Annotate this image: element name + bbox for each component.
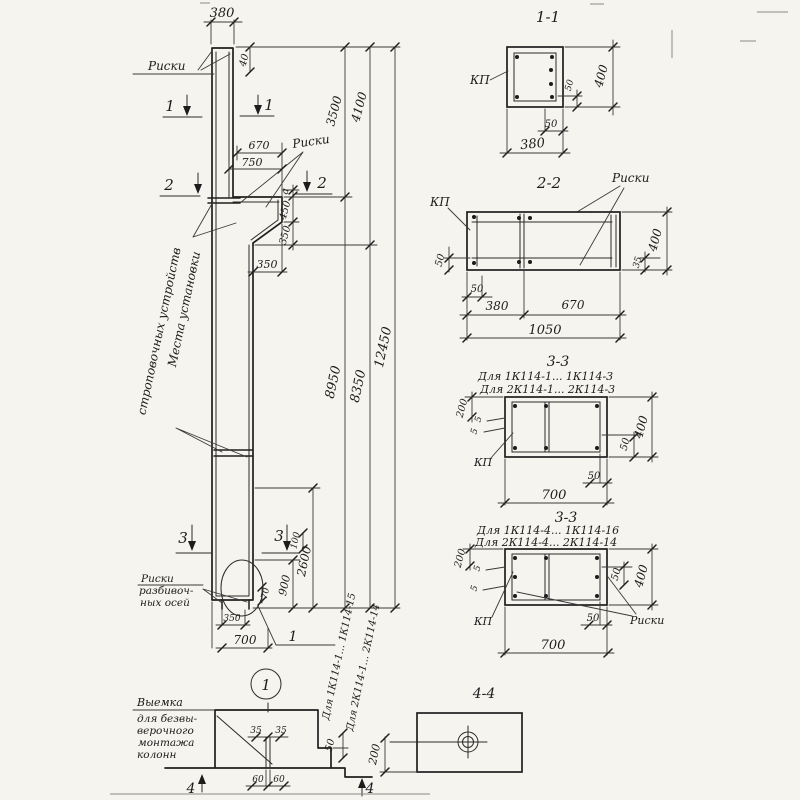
section-3-3a-for1: Для 1К114-1... 1К114-3 [477, 370, 613, 383]
section-3-3a-for2: Для 2К114-1... 2К114-3 [479, 383, 615, 396]
blueprint-column-drawing: 380 40 Риски 1 1 2 2 3 [0, 0, 800, 800]
dim-450: 450 [278, 199, 294, 222]
dim-60b: 60 [273, 775, 285, 785]
drawing-sheet: 380 40 Риски 1 1 2 2 3 [0, 0, 800, 800]
recess-note-4: монтажа [138, 737, 194, 749]
svg-text:1: 1 [165, 97, 175, 115]
section-mark-2-right: 2 [296, 171, 332, 194]
section-3-3a: 3-3 Для 1К114-1... 1К114-3 Для 2К114-1..… [455, 354, 658, 507]
dim-50l-2-2: 50 [434, 252, 448, 268]
section-mark-3-left: 3 [176, 525, 212, 553]
section-3-3a-title: 3-3 [547, 354, 570, 370]
sling-note: Места установки строповочных устройств [134, 202, 247, 457]
svg-text:1: 1 [289, 629, 298, 645]
svg-text:1: 1 [261, 676, 271, 694]
dim-670-2-2: 670 [562, 298, 585, 312]
kp-label-3-3a: КП [473, 456, 493, 469]
dim-670: 670 [249, 139, 270, 152]
svg-text:2: 2 [316, 174, 327, 192]
section-3-3b: 3-3 Для 1К114-4... 1К114-16 Для 2К114-4.… [453, 510, 665, 657]
detail-ref-leader: 1 [258, 606, 335, 645]
dim-700-base: 700 [234, 633, 257, 647]
dim-35b: 35 [275, 726, 287, 736]
riski-mid-label: Риски [290, 132, 330, 151]
dim-35a: 35 [250, 726, 262, 736]
svg-text:ных осей: ных осей [140, 597, 190, 609]
riski-label-3-3b: Риски [629, 614, 664, 627]
section-mark-1-right: 1 [240, 95, 274, 116]
dim-50b-2-2: 50 [471, 284, 484, 295]
dim-50-recess: 50 [324, 737, 338, 753]
section-1-1: 1-1 КП 400 50 50 380 [469, 8, 620, 157]
dim-12450: 12450 [372, 325, 395, 369]
svg-text:2: 2 [163, 176, 174, 194]
dim-350-v: 350 [278, 224, 294, 246]
layout-axes-note: Риски разбивоч- ных осей [138, 573, 247, 609]
recess-note-3: верочного [137, 725, 194, 737]
dim-380-2-2: 380 [486, 299, 509, 313]
svg-text:1: 1 [264, 96, 274, 114]
base-dims: 350 700 [212, 602, 272, 652]
recess-detail: Выемка для безвы- верочного монтажа коло… [133, 696, 374, 797]
dim-4100: 4100 [348, 90, 370, 124]
dim-400-1-1: 400 [591, 63, 611, 90]
section-3-3b-for2: Для 2К114-4... 2К114-14 [474, 536, 617, 549]
section-1-1-title: 1-1 [536, 8, 560, 26]
dim-50b-1-1: 50 [545, 119, 558, 130]
column-elevation: 380 40 Риски 1 1 2 2 3 [133, 6, 400, 733]
section-2-2-title: 2-2 [536, 174, 561, 192]
section-4-4-title: 4-4 [472, 686, 496, 702]
kp-label-2-2: КП [429, 195, 450, 209]
dim-8950: 8950 [323, 365, 345, 400]
dim-50b-3-3a: 50 [588, 471, 601, 482]
svg-text:4: 4 [365, 781, 375, 797]
dim-750: 750 [242, 156, 263, 169]
dim-380-1-1: 380 [520, 136, 546, 154]
svg-text:4: 4 [186, 781, 196, 797]
detail-ref-bubble: 1 [251, 669, 281, 699]
dim-200-3-3b: 200 [453, 547, 469, 570]
section-4-4: 4-4 200 [366, 686, 522, 776]
dim-400-3-3a: 400 [631, 414, 651, 441]
svg-text:3: 3 [178, 529, 188, 547]
dim-700-3-3b: 700 [541, 638, 566, 653]
recess-note-5: колонн [137, 749, 177, 761]
section-mark-2-left: 2 [160, 173, 202, 196]
riski-label-2-2: Риски [611, 171, 649, 185]
svg-text:разбивоч-: разбивоч- [139, 585, 194, 597]
dim-60a: 60 [252, 775, 264, 785]
dim-3500: 3500 [323, 94, 345, 127]
dim-50r-3-3a: 50 [619, 436, 633, 452]
svg-text:Риски: Риски [140, 573, 174, 585]
dim-700-3-3a: 700 [542, 488, 567, 503]
dim-5a-3-3b: 5 [472, 564, 483, 572]
section-2-2: 2-2 Риски КП 50 50 380 670 1050 400 35 [429, 171, 672, 342]
dim-400-2-2: 400 [645, 227, 665, 254]
svg-text:3: 3 [274, 527, 284, 545]
dim-5b-3-3b: 5 [469, 584, 480, 592]
recess-note-1: Выемка [136, 696, 183, 709]
dim-5a-3-3a: 5 [473, 415, 484, 423]
kp-label-1-1: КП [469, 73, 490, 87]
dim-350-base: 350 [223, 614, 240, 624]
dim-400-3-3b: 400 [631, 563, 651, 590]
dim-35-2-2: 35 [632, 255, 645, 269]
dim-200-4-4: 200 [366, 743, 383, 767]
dim-8350: 8350 [348, 369, 370, 404]
dim-70: 70 [260, 587, 272, 601]
dim-a: а [280, 187, 292, 196]
dim-50b-3-3b: 50 [587, 613, 600, 624]
section-mark-1-left: 1 [163, 95, 202, 117]
dim-5b-3-3a: 5 [469, 427, 480, 435]
dim-200-3-3a: 200 [455, 397, 471, 420]
recess-note-2: для безвы- [137, 713, 198, 725]
dim-380-top: 380 [210, 6, 235, 21]
dim-1050-2-2: 1050 [528, 323, 561, 338]
riski-top-label: Риски [147, 59, 185, 73]
kp-label-3-3b: КП [473, 615, 493, 628]
dim-900: 900 [276, 574, 293, 597]
dim-50a-1-1: 50 [564, 78, 577, 92]
dim-350-h: 350 [257, 258, 278, 271]
